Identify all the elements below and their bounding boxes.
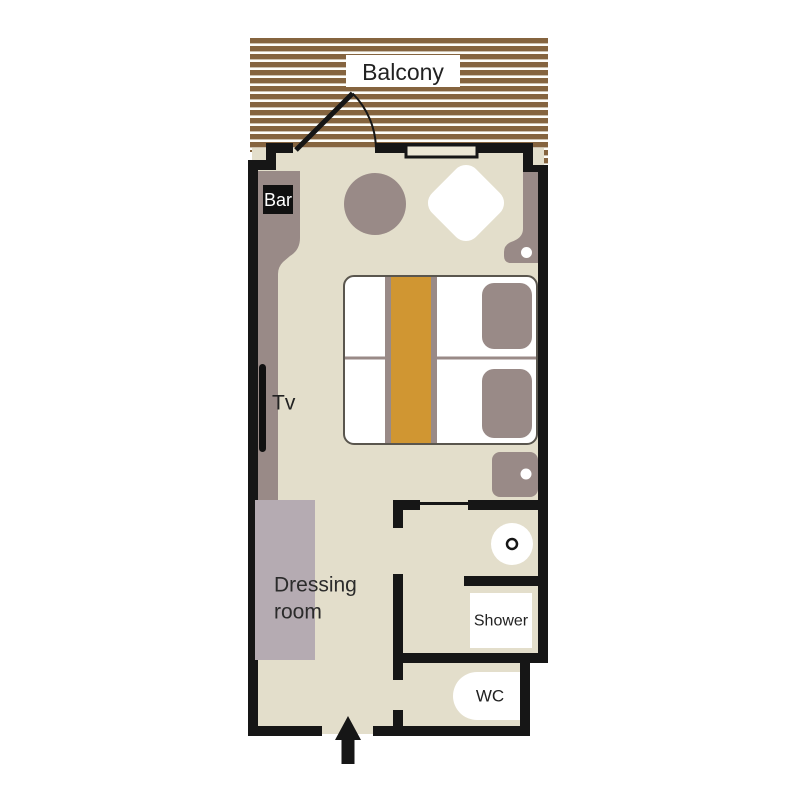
nightstand (492, 452, 538, 497)
wall-bathroom-vertical-2 (393, 574, 403, 680)
wall-bathroom-vertical-3 (393, 710, 403, 736)
floor-plan: Balcony Bar (0, 0, 800, 800)
balcony-label: Balcony (362, 59, 444, 85)
round-table (344, 173, 406, 235)
window (406, 145, 477, 157)
balcony-label-box: Balcony (346, 55, 460, 87)
bathroom-sliding-door (420, 502, 468, 505)
bed-divider (345, 357, 536, 360)
wc: WC (453, 672, 520, 720)
pillow-bottom (482, 369, 532, 438)
wall-wc-right (520, 658, 530, 736)
bed-runner (391, 277, 431, 443)
pillow-top (482, 283, 532, 349)
wall-right (538, 165, 548, 663)
bar-unit: Bar (263, 185, 293, 214)
wall-shower-bottom (393, 653, 548, 663)
outside-cutout (530, 663, 550, 743)
floor-plan-page: Balcony Bar (0, 0, 800, 800)
nightstand-dot (521, 469, 532, 480)
dressing-label-line1: Dressing (274, 574, 357, 597)
corner-bench-dot (521, 247, 532, 258)
wall-bathroom-vertical-1 (393, 500, 403, 528)
sink-drain (507, 539, 517, 549)
bar-label: Bar (264, 190, 292, 210)
tv-screen (259, 364, 266, 452)
shower: Shower (470, 593, 532, 648)
bed (344, 276, 537, 444)
wc-label: WC (476, 687, 504, 706)
dressing-label-line2: room (274, 601, 322, 624)
wall-bottom-left-segment (248, 726, 322, 736)
shower-label: Shower (474, 613, 529, 630)
tv-label: Tv (272, 392, 296, 415)
wall-bathroom-top-right (468, 500, 538, 510)
sink (491, 523, 533, 565)
bed-runner-edge-left (385, 277, 391, 443)
bed-runner-edge-right (431, 277, 437, 443)
wall-sink-shower-divider (464, 576, 538, 586)
